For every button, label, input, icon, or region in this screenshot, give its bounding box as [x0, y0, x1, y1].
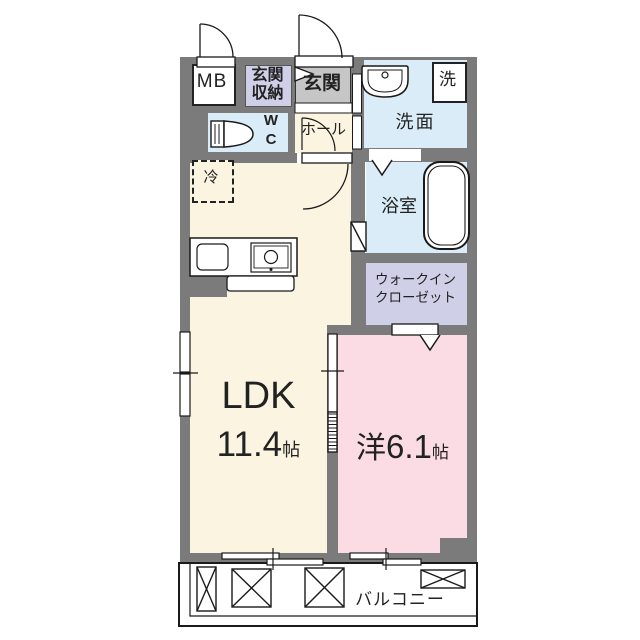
- toilet-icon: [211, 121, 253, 147]
- entrance-step: [295, 103, 352, 113]
- walk-in-closet-label: ウォークイン クローゼット: [364, 271, 467, 306]
- ldk-label: LDK: [190, 374, 327, 420]
- wc-label: W C: [259, 112, 283, 150]
- ldk-unit: 帖: [282, 440, 300, 460]
- plan-linework: [0, 0, 640, 640]
- meter-box-label: MB: [192, 71, 232, 94]
- duct-box: [351, 222, 366, 251]
- mb-door: [197, 24, 235, 67]
- western-unit: 帖: [432, 442, 449, 462]
- washroom-label: 洗面: [364, 112, 467, 134]
- bathroom-door-opening: [369, 149, 421, 161]
- ldk-size-label: 11.4帖: [186, 424, 331, 466]
- entrance-label: 玄関: [295, 73, 349, 96]
- closet-door: [392, 324, 438, 335]
- balcony-label: バルコニー: [345, 590, 455, 610]
- floorplan: MB 玄関 収納 玄関 洗 洗面 W C ホール 冷 浴室 ウォークイン クロー…: [0, 0, 640, 640]
- western-room-label: 洋6.1帖: [338, 427, 467, 467]
- bathroom-label: 浴室: [366, 196, 432, 218]
- washer-label: 洗: [432, 70, 463, 90]
- washbasin-icon: [362, 66, 408, 97]
- closet-door-arrow: [420, 335, 440, 350]
- kitchen-counter-extension: [227, 276, 294, 291]
- bathroom-folding-door: [372, 160, 392, 175]
- entrance-storage-label: 玄関 収納: [245, 67, 290, 104]
- refrigerator-label: 冷: [192, 169, 230, 187]
- kitchen-counter-icon: [190, 238, 297, 291]
- entrance-door: [295, 15, 353, 67]
- ldk-door: [302, 153, 352, 209]
- washroom-sliding-door: [353, 74, 362, 149]
- hall-label: ホール: [295, 121, 352, 139]
